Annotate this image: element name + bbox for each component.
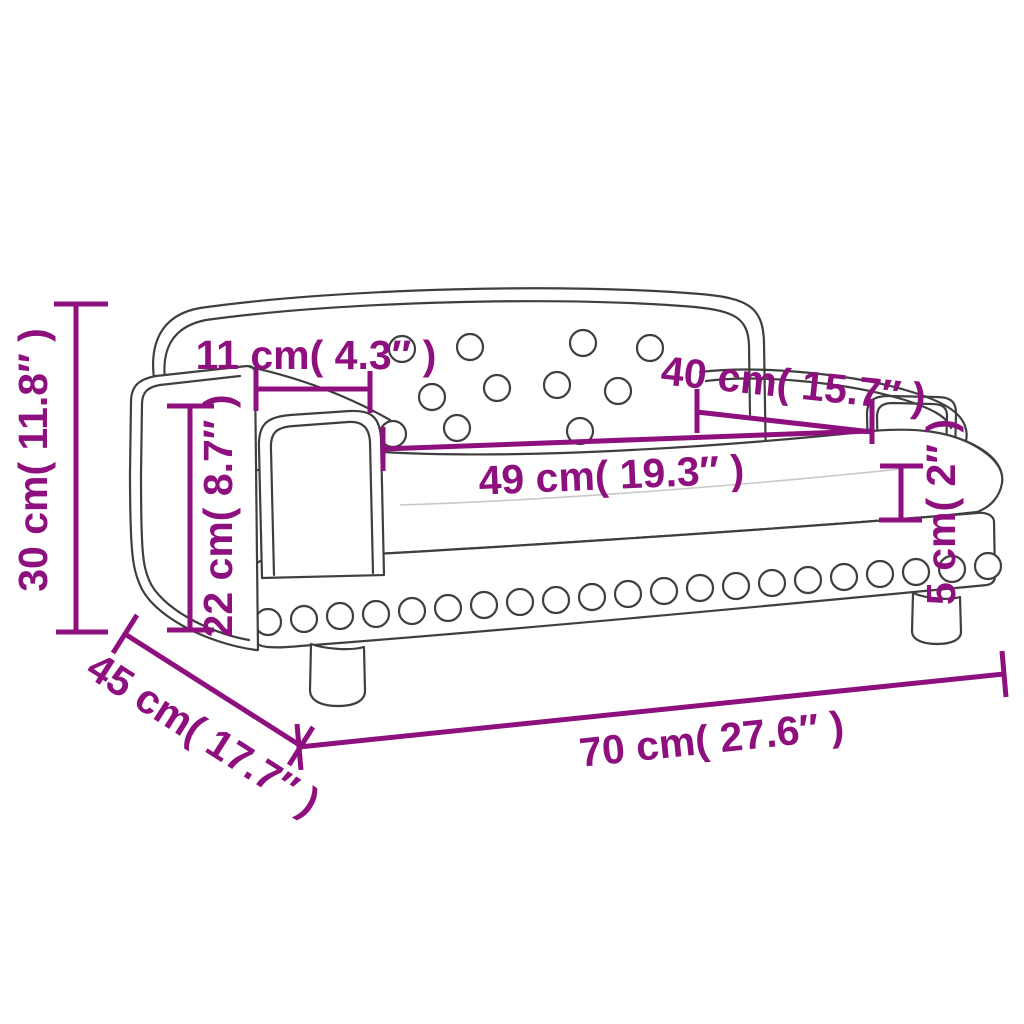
dim-seat-height-label: 22 cm( 8.7″ ) <box>195 395 241 638</box>
nailhead <box>759 570 785 596</box>
dim-backrest-top-span-label: 11 cm( 4.3″ ) <box>196 332 437 378</box>
tufting-button <box>444 415 470 441</box>
diagram-canvas: 30 cm( 11.8″ ) 22 cm( 8.7″ ) 11 cm( 4.3″… <box>0 0 1024 1024</box>
nailhead <box>975 553 1001 579</box>
dim-cushion-thickness-label: 5 cm( 2″ ) <box>918 419 964 605</box>
nailhead <box>327 603 353 629</box>
nailhead <box>579 584 605 610</box>
nailhead <box>543 587 569 613</box>
nailhead <box>471 592 497 618</box>
front-left-leg <box>310 644 365 706</box>
nailhead <box>507 589 533 615</box>
nailhead <box>651 578 677 604</box>
nailhead <box>687 575 713 601</box>
nailhead <box>399 598 425 624</box>
dim-overall-height-label: 30 cm( 11.8″ ) <box>10 328 56 592</box>
dim-overall-depth-label: 45 cm( 17.7″ ) <box>79 643 328 825</box>
nailhead <box>255 609 281 635</box>
tufting-button <box>457 334 483 360</box>
nailhead <box>831 564 857 590</box>
dim-overall-height: 30 cm( 11.8″ ) <box>10 304 108 632</box>
nailhead <box>363 601 389 627</box>
nailhead <box>615 581 641 607</box>
nailhead <box>867 561 893 587</box>
tufting-button <box>544 372 570 398</box>
dim-overall-height-lines <box>54 304 108 632</box>
tufting-button <box>484 375 510 401</box>
nailhead <box>435 595 461 621</box>
nailhead <box>291 606 317 632</box>
tufting-button <box>605 378 631 404</box>
tufting-button <box>637 335 663 361</box>
tufting-button <box>570 330 596 356</box>
dim-overall-width: 70 cm( 27.6″ ) <box>297 651 1006 776</box>
nailhead <box>795 567 821 593</box>
dimension-diagram: 30 cm( 11.8″ ) 22 cm( 8.7″ ) 11 cm( 4.3″… <box>0 0 1024 1024</box>
nailhead <box>723 573 749 599</box>
tufting-button <box>419 384 445 410</box>
left-arm-panel <box>259 411 384 578</box>
